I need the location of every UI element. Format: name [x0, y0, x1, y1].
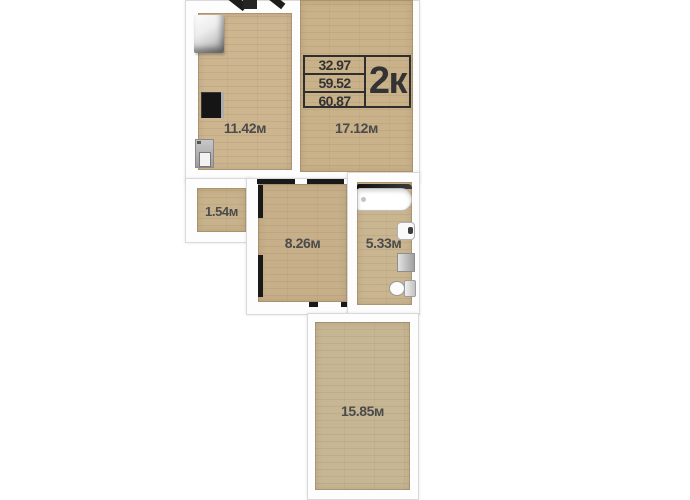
fridge-icon [194, 15, 224, 53]
bedroom-area-label: 15.85м [315, 403, 410, 419]
apartment-info-box: 32.97 59.52 60.87 2к [303, 55, 411, 108]
area-value-2: 59.52 [305, 73, 364, 91]
sink-basin-icon [199, 152, 211, 167]
door-frame-left-upper [258, 185, 263, 218]
area-value-3: 60.87 [305, 91, 364, 109]
door-frame-top-right [307, 179, 344, 184]
kitchen-sink-icon [195, 139, 214, 168]
bathroom-area-label: 5.33м [355, 235, 412, 251]
kitchen-area-label: 11.42м [198, 120, 292, 136]
hallway-area-label: 8.26м [258, 235, 347, 251]
faucet-icon [197, 141, 201, 144]
toilet-icon [389, 280, 416, 297]
floor-plan: 32.97 59.52 60.87 2к 11.42м 17.12м 1.54м… [0, 0, 690, 500]
toilet-tank-icon [404, 280, 416, 297]
door-frame-top-left [257, 179, 295, 184]
washing-machine-icon [397, 253, 415, 272]
area-values-column: 32.97 59.52 60.87 [305, 57, 366, 106]
door-frame-left-lower [258, 255, 263, 297]
toilet-bowl-icon [389, 281, 405, 296]
living-area-label: 17.12м [300, 120, 413, 136]
door-jamb-bedroom-left [309, 302, 318, 307]
bathtub-drain-icon [361, 197, 366, 202]
washbasin-tap-icon [408, 227, 413, 234]
stove-icon [201, 92, 224, 118]
area-value-1: 32.97 [305, 57, 364, 73]
apartment-type-label: 2к [366, 57, 409, 106]
bathtub-icon [357, 184, 412, 211]
storage-area-label: 1.54м [197, 204, 246, 219]
door-jamb-bedroom-right [341, 302, 347, 307]
door-hinge-icon [243, 0, 257, 9]
